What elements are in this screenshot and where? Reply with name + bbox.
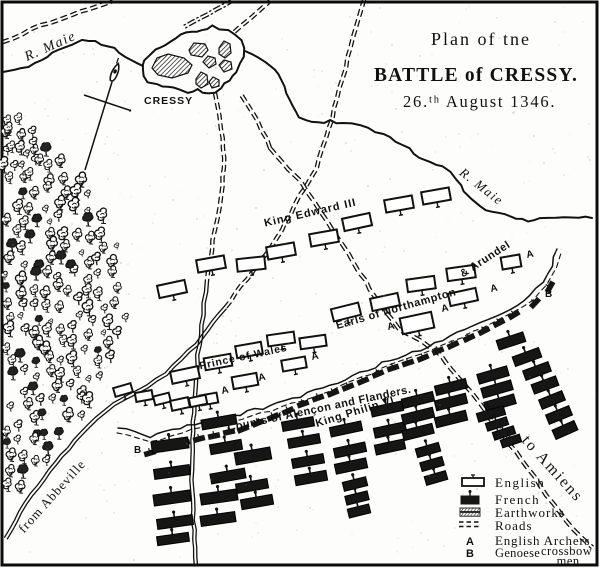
svg-text:Plan of tne: Plan of tne <box>431 29 531 49</box>
svg-text:26.th August 1346.: 26.th August 1346. <box>403 92 556 111</box>
svg-text:B: B <box>466 548 474 560</box>
svg-text:A: A <box>466 536 474 548</box>
svg-text:.men: .men <box>553 554 580 568</box>
svg-text:BATTLE of CRESSY.: BATTLE of CRESSY. <box>374 65 578 86</box>
svg-text:CRESSY: CRESSY <box>144 95 193 107</box>
svg-text:Roads: Roads <box>495 518 533 533</box>
svg-text:English: English <box>495 475 545 490</box>
svg-text:B: B <box>545 289 552 300</box>
svg-text:B: B <box>134 445 141 456</box>
svg-text:Genoese: Genoese <box>495 546 540 560</box>
